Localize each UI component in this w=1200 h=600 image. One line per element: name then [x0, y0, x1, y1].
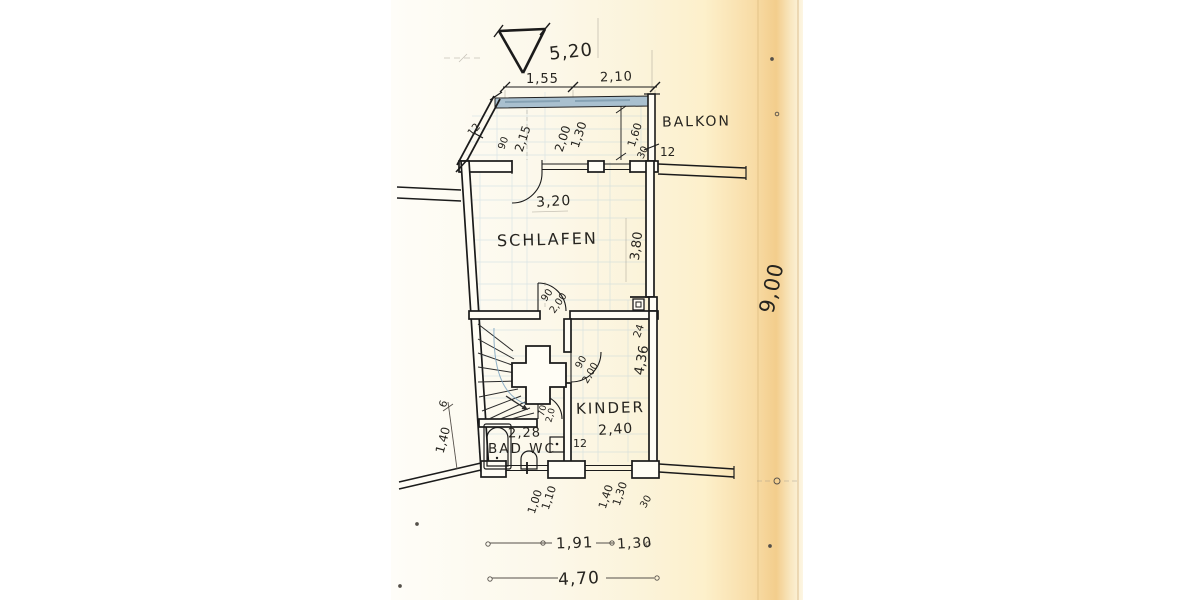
dim-right-overall: 9,00 — [755, 261, 789, 316]
dim-kinder-width: 2,40 — [598, 421, 634, 439]
scanned-floor-plan-page: 5,20 1,55 2,10 BALKON 12 12 90 2,15 2,00… — [0, 0, 1200, 600]
dim-top-seg-1: 1,55 — [526, 72, 559, 87]
dim-bottom-seg-1: 1,91 — [556, 533, 594, 552]
dim-balcony-door-width: 90 — [497, 135, 512, 151]
dim-kinder-window-height: 1,30 — [610, 480, 630, 507]
top-dimension-line — [500, 82, 660, 92]
chimney-cross-block — [512, 346, 566, 404]
dim-bottom-overall: 4,70 — [558, 568, 601, 590]
dim-left-seg: 1,40 — [433, 425, 453, 454]
dim-bottom-seg-2: 1,30 — [617, 535, 653, 553]
dim-schlafen-depth: 3,80 — [628, 231, 646, 262]
dim-bad-window-height: 1,10 — [539, 484, 559, 511]
dim-top-overall: 5,20 — [548, 39, 594, 64]
room-label-balkon: BALKON — [662, 113, 731, 130]
dim-balcony-depth: 1,60 — [625, 121, 645, 148]
room-label-schlafen: SCHLAFEN — [497, 229, 598, 251]
survey-triangle-icon — [494, 23, 550, 73]
floor-plan-drawing: 5,20 1,55 2,10 BALKON 12 12 90 2,15 2,00… — [0, 0, 1200, 600]
room-label-kinder: KINDER — [576, 398, 645, 418]
balcony-depth-dim-line — [616, 106, 626, 160]
dim-balcony-window-height: 1,30 — [568, 120, 590, 150]
dim-schlafen-width: 3,20 — [536, 193, 572, 211]
dim-left-tick: 6 — [437, 398, 451, 409]
room-label-bad: BAD WC — [488, 441, 556, 457]
dim-wall-step: 24 — [631, 322, 647, 339]
dim-top-seg-2: 2,10 — [600, 69, 633, 85]
dim-bad-width: 2,28 — [508, 425, 541, 441]
dim-bottom-pier: 30 — [638, 494, 654, 511]
dim-bad-wall-thickness: 12 — [573, 437, 587, 450]
bottom-dimension-lines — [399, 58, 780, 588]
dim-balcony-door-height: 2,15 — [512, 124, 534, 154]
dim-balcony-wall-thickness: 12 — [660, 145, 675, 159]
